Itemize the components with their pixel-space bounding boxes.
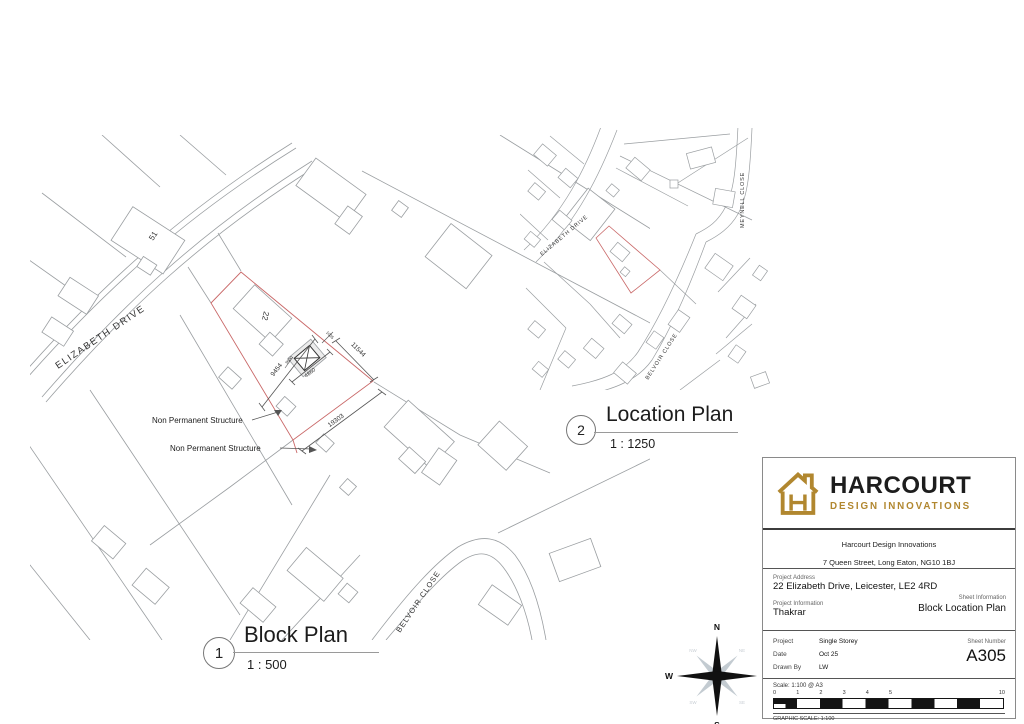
compass-s: S	[714, 720, 720, 724]
svg-text:NE: NE	[739, 648, 745, 653]
sheet-number-label: Sheet Number	[967, 639, 1006, 645]
compass-w: W	[665, 671, 674, 681]
compass-n: N	[714, 622, 720, 632]
title-underline	[594, 432, 738, 433]
company-address: 7 Queen Street, Long Eaton, NG10 1BJ	[763, 558, 1015, 567]
svg-text:Non Permanent Structure: Non Permanent Structure	[170, 444, 261, 453]
project-value: Single Storey	[819, 638, 858, 645]
svg-text:SE: SE	[739, 700, 745, 705]
dim-1035: 1035	[325, 330, 336, 341]
svg-text:Non Permanent Structure: Non Permanent Structure	[152, 416, 243, 425]
sheet-information-value: Block Location Plan	[918, 603, 1006, 614]
company-logo: HARCOURT DESIGN INNOVATIONS	[763, 458, 1015, 528]
dim-9454: 9454	[270, 362, 285, 378]
scale-section: Scale: 1:100 @ A3 0 1 2 3 4 5 10 GRAPHIC…	[763, 678, 1015, 722]
location-plan-linework	[520, 128, 770, 390]
street-label-belvoir-close: BELVOIR CLOSE	[394, 569, 442, 634]
view-scale: 1 : 1250	[610, 437, 655, 451]
house-outline	[524, 144, 769, 389]
view-number-badge: 1	[203, 637, 235, 669]
project-info-section: Project Address 22 Elizabeth Drive, Leic…	[763, 568, 1015, 630]
site-boundary	[596, 226, 660, 293]
title-block: HARCOURT DESIGN INNOVATIONS Harcourt Des…	[762, 457, 1016, 719]
house-logo-icon	[775, 468, 821, 518]
view-scale: 1 : 500	[247, 657, 287, 672]
graphic-scale-label: GRAPHIC SCALE: 1:100	[773, 714, 1005, 722]
project-label: Project	[773, 638, 819, 645]
location-plan-canvas: ELIZABETH DRIVE MEYNELL CLOSE BELVOIR CL…	[520, 128, 780, 390]
sheet-number-value: A305	[966, 646, 1006, 666]
scale-bar-numbers: 0 1 2 3 4 5 10	[773, 690, 1005, 698]
drawing-sheet: 9454 4860 11544 19303 1035 3600 ELIZABET…	[0, 0, 1024, 724]
title-underline	[233, 652, 379, 653]
company-name: Harcourt Design Innovations	[763, 540, 1015, 549]
company-info: Harcourt Design Innovations 7 Queen Stre…	[763, 528, 1015, 568]
annotation-non-permanent-1: Non Permanent Structure	[152, 410, 282, 425]
scale-note: Scale: 1:100 @ A3	[773, 683, 1005, 689]
compass-rose: N E S W NW NE SW SE	[662, 618, 772, 724]
street-label-meynell-close: MEYNELL CLOSE	[740, 172, 746, 228]
drawn-by-label: Drawn By	[773, 664, 819, 671]
svg-text:SW: SW	[689, 700, 697, 705]
view-title: Location Plan	[606, 403, 733, 427]
logo-name: HARCOURT	[830, 474, 971, 498]
graphic-scale-bar	[773, 698, 1004, 709]
drawn-by-value: LW	[819, 664, 828, 671]
date-value: Oct 25	[819, 651, 838, 658]
view-title: Block Plan	[244, 622, 348, 648]
meta-section: Project Single Storey Date Oct 25 Drawn …	[763, 630, 1015, 678]
svg-text:NW: NW	[689, 648, 697, 653]
view-number-badge: 2	[566, 415, 596, 445]
project-address-value: 22 Elizabeth Drive, Leicester, LE2 4RD	[773, 581, 1005, 592]
date-label: Date	[773, 651, 819, 658]
logo-tagline: DESIGN INNOVATIONS	[830, 501, 971, 512]
sheet-information-label: Sheet Information	[959, 595, 1006, 601]
dim-11544: 11544	[349, 341, 367, 359]
